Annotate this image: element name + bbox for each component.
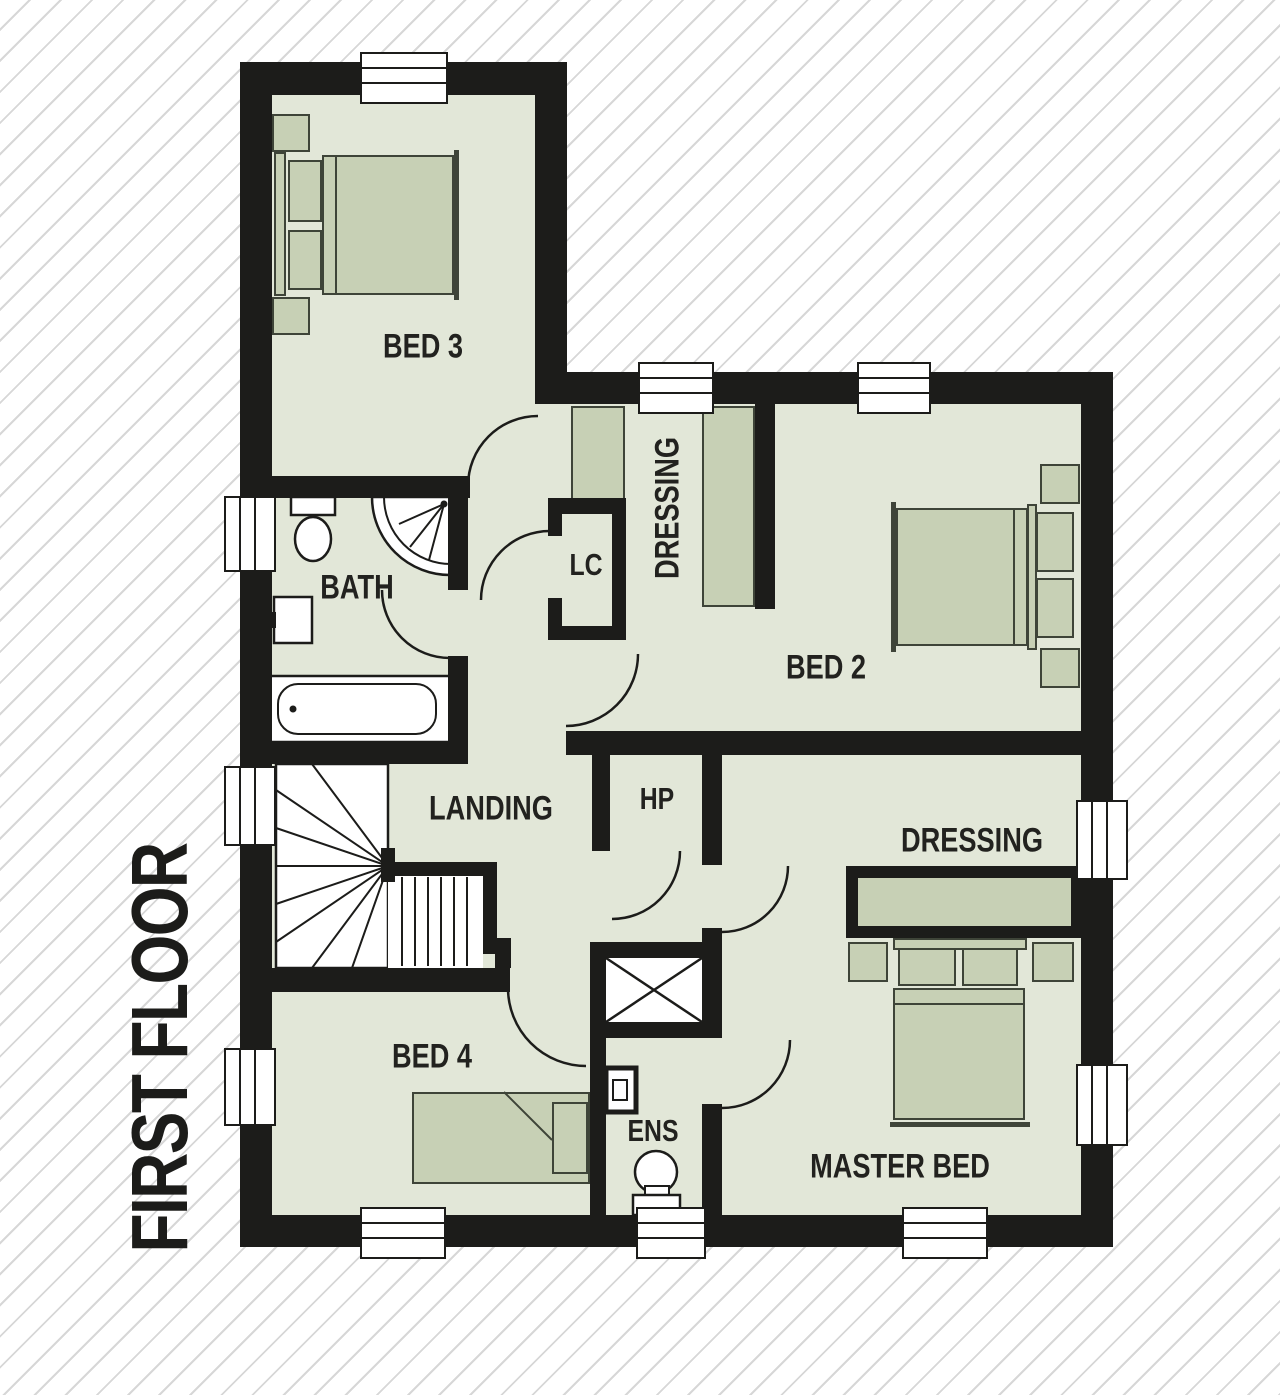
door-arc-bed3 <box>468 416 538 486</box>
room-label-bed2: BED 2 <box>786 649 866 688</box>
bath-fixtures <box>264 497 454 742</box>
wall-bath-right-upper <box>448 476 468 590</box>
floor-title: FIRST FLOOR <box>114 843 206 1252</box>
wall-bed4-ens-divider <box>590 942 606 1217</box>
window <box>1076 1064 1128 1146</box>
wall-stair-door-jamb <box>495 938 511 968</box>
wall-rooflight-bottom <box>590 1022 722 1038</box>
room-label-lc: LC <box>569 547 602 583</box>
wall-bed2-left <box>755 404 775 609</box>
room-label-ens: ENS <box>628 1113 679 1149</box>
basin-bowl <box>613 1080 627 1100</box>
door-arc-bed2 <box>566 654 638 726</box>
window <box>224 1048 276 1126</box>
window <box>857 362 931 414</box>
rooflight-cross <box>606 958 702 1022</box>
door-arc-hp <box>612 851 680 919</box>
room-label-bed4: BED 4 <box>392 1038 472 1077</box>
door-arc-lc <box>481 531 550 600</box>
wall-lc-right <box>612 498 626 640</box>
window <box>1076 800 1128 880</box>
room-label-hp: HP <box>640 781 674 817</box>
wall-hp-left <box>592 755 610 851</box>
shower-head <box>441 501 448 508</box>
room-label-bed3: BED 3 <box>383 328 463 367</box>
floorplan-canvas: BED 3 BATH LC DRESSING BED 2 LANDING HP … <box>0 0 1280 1395</box>
wall-lc-left-stub-top <box>548 514 562 536</box>
room-label-dressing-top: DRESSING <box>649 437 688 579</box>
wash-basin <box>274 597 312 643</box>
room-label-landing: LANDING <box>429 790 553 829</box>
wall-stairs-bottom <box>270 968 510 992</box>
toilet-neck <box>645 1186 669 1195</box>
room-label-bath: BATH <box>320 569 394 608</box>
wall-bath-right-lower <box>448 656 468 748</box>
wall-bed2-bottom <box>566 731 1083 755</box>
window <box>636 1207 706 1259</box>
wall-exterior-bed3-right <box>535 62 567 404</box>
window <box>902 1207 988 1259</box>
door-arc-bed4 <box>508 988 586 1066</box>
wall-bath-bottom <box>270 742 468 764</box>
wall-bath-top <box>270 476 470 498</box>
toilet <box>295 517 331 561</box>
toilet-cistern <box>291 497 335 515</box>
wall-master-left-upper <box>702 755 722 865</box>
window <box>360 52 448 104</box>
bathtub-drain <box>290 706 297 713</box>
wall-master-left-lower <box>702 1104 722 1217</box>
window <box>224 766 276 846</box>
window <box>360 1207 446 1259</box>
wall-lc-bottom <box>548 626 626 640</box>
bed-sheet-lines <box>336 157 1023 1140</box>
wall-stair-flight-top <box>386 862 497 876</box>
wall-rooflight-top <box>590 942 722 958</box>
wall-exterior-top-right-wing <box>535 372 1113 404</box>
wall-lc-left-stub-bottom <box>548 598 562 626</box>
door-arc-master <box>722 866 788 932</box>
door-arc-ens <box>722 1040 790 1108</box>
room-label-master-bed: MASTER BED <box>810 1148 990 1187</box>
room-label-dressing-master: DRESSING <box>901 822 1043 861</box>
window <box>638 362 714 414</box>
window <box>224 496 276 572</box>
